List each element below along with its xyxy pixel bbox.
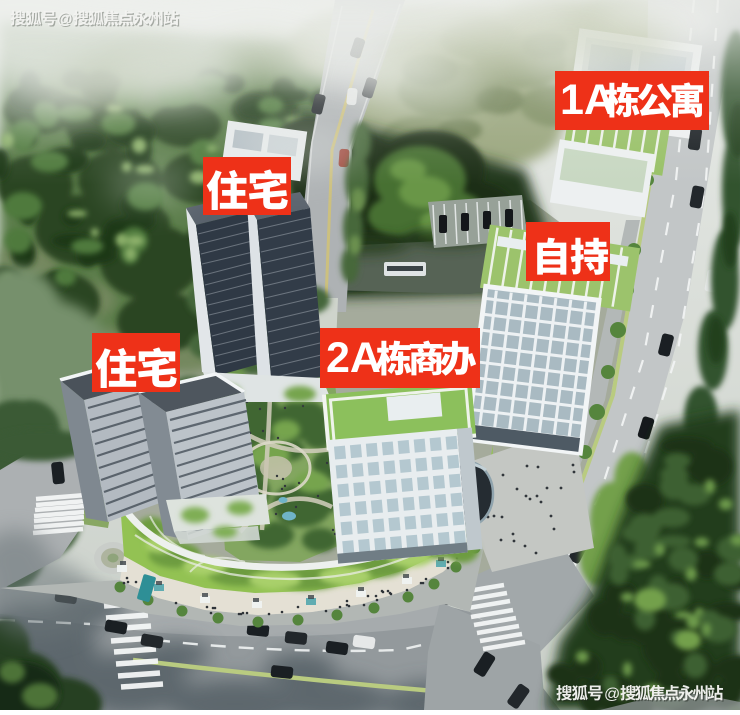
svg-text:2A: 2A (326, 334, 381, 382)
svg-text:@: @ (604, 686, 620, 703)
svg-text:1A: 1A (560, 76, 615, 124)
svg-text:@: @ (57, 11, 73, 28)
